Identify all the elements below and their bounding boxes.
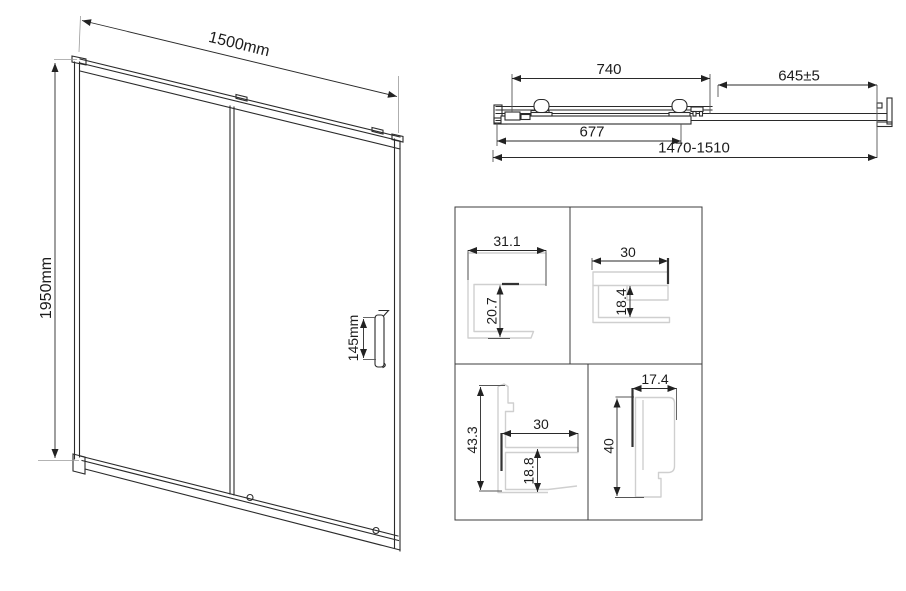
front-view: 1500mm 1950mm 145mm bbox=[38, 16, 403, 551]
profile-bottom-left: 43.3 30 18.8 bbox=[464, 384, 578, 493]
profile-br-height-label: 40 bbox=[601, 438, 617, 454]
profile-bl-height-label: 43.3 bbox=[464, 426, 480, 453]
profile-grid: 31.1 20.7 30 18.4 43.3 30 bbox=[455, 207, 702, 520]
glass-width-dimension: 677 bbox=[497, 123, 681, 146]
door-panel-dimension-label: 740 bbox=[596, 61, 621, 78]
roller-icon bbox=[669, 100, 690, 117]
height-dimension-label: 1950mm bbox=[38, 257, 55, 319]
track-assembly bbox=[494, 74, 892, 127]
profile-bl-depth-label: 18.8 bbox=[521, 457, 537, 484]
roller-icon bbox=[531, 100, 552, 117]
handle-dimension: 145mm bbox=[345, 315, 376, 362]
profile-top-left: 31.1 20.7 bbox=[468, 233, 546, 339]
fixed-panel-dimension: 645±5 bbox=[718, 68, 877, 159]
profile-tl-width-label: 31.1 bbox=[493, 233, 520, 249]
profile-bottom-right: 40 17.4 bbox=[601, 371, 677, 498]
profile-tr-depth-label: 18.4 bbox=[613, 288, 629, 315]
height-dimension: 1950mm bbox=[38, 60, 79, 461]
bracket-icon bbox=[691, 107, 703, 116]
shower-door-technical-drawing: 1500mm 1950mm 145mm bbox=[0, 0, 906, 591]
adjustment-range-label: 1470-1510 bbox=[658, 140, 730, 157]
door-frame bbox=[72, 56, 403, 551]
profile-bl-width-label: 30 bbox=[533, 416, 549, 432]
width-dimension-label: 1500mm bbox=[207, 29, 272, 60]
glass-width-dimension-label: 677 bbox=[579, 124, 604, 141]
profile-tr-width-label: 30 bbox=[620, 244, 636, 260]
top-view: 740 645±5 677 1470-1510 bbox=[493, 61, 892, 162]
door-handle bbox=[375, 311, 389, 368]
guide-wheel-icon bbox=[247, 495, 253, 501]
adjustment-range-dimension: 1470-1510 bbox=[493, 140, 877, 163]
drawing-canvas: 1500mm 1950mm 145mm bbox=[0, 0, 906, 591]
fixed-panel-dimension-label: 645±5 bbox=[778, 68, 820, 85]
profile-top-right: 30 18.4 bbox=[592, 244, 670, 323]
profile-br-width-label: 17.4 bbox=[641, 371, 668, 387]
handle-dimension-label: 145mm bbox=[345, 315, 361, 362]
profile-tl-depth-label: 20.7 bbox=[484, 297, 500, 324]
